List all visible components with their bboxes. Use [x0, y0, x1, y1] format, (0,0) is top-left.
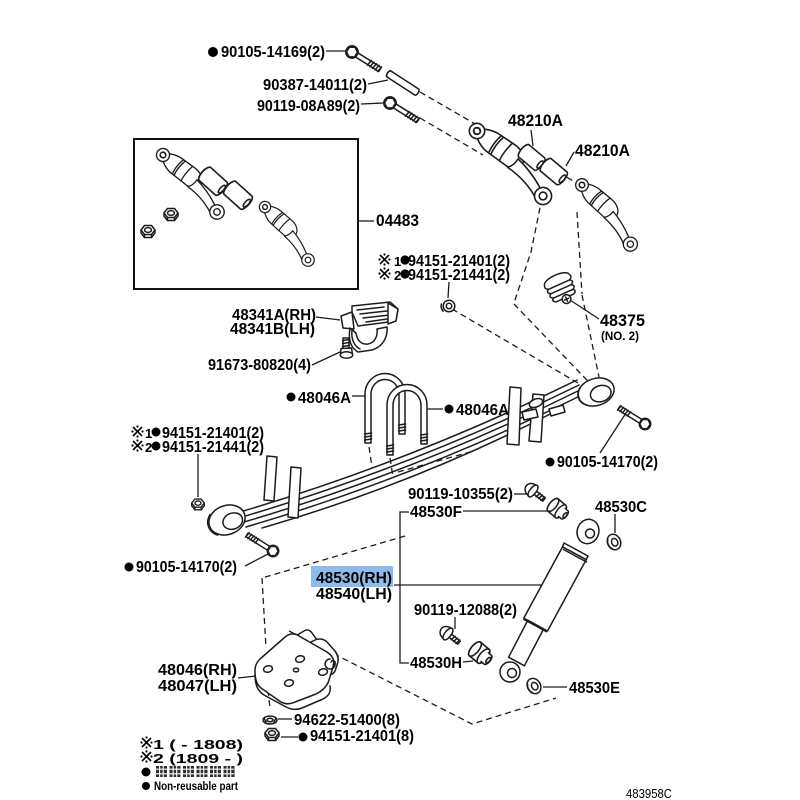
svg-text:48341B(LH): 48341B(LH)	[230, 321, 315, 338]
svg-text:2: 2	[145, 440, 152, 455]
svg-text:90387-14011(2): 90387-14011(2)	[263, 77, 367, 94]
svg-text:1: 1	[145, 426, 152, 441]
svg-text:2: 2	[394, 268, 401, 283]
svg-text:48375: 48375	[600, 311, 645, 330]
svg-text:Non-reusable part: Non-reusable part	[154, 779, 238, 793]
svg-text:(NO. 2): (NO. 2)	[601, 329, 639, 343]
svg-text:90105-14170(2): 90105-14170(2)	[557, 454, 658, 471]
svg-text:48210A: 48210A	[508, 111, 563, 130]
svg-text:48046A: 48046A	[456, 402, 509, 419]
svg-text:2 (1809 - ): 2 (1809 - )	[153, 751, 243, 766]
svg-text:90105-14169(2): 90105-14169(2)	[221, 44, 325, 61]
svg-text:91673-80820(4): 91673-80820(4)	[208, 357, 311, 374]
svg-text:1: 1	[394, 254, 401, 269]
svg-text:48046A: 48046A	[298, 390, 351, 407]
svg-text:48530C: 48530C	[595, 499, 647, 516]
svg-text:94622-51400(8): 94622-51400(8)	[294, 712, 400, 729]
svg-text:48210A: 48210A	[575, 141, 630, 160]
svg-text:48530E: 48530E	[569, 680, 620, 697]
svg-text:48530F: 48530F	[410, 504, 462, 521]
svg-text:90105-14170(2): 90105-14170(2)	[136, 559, 237, 576]
svg-text:48047(LH): 48047(LH)	[158, 678, 237, 695]
svg-text:94151-21441(2): 94151-21441(2)	[162, 439, 264, 456]
svg-text:90119-08A89(2): 90119-08A89(2)	[257, 98, 360, 115]
svg-text:04483: 04483	[376, 211, 419, 230]
svg-text:48530H: 48530H	[410, 655, 462, 672]
svg-text:1 ( - 1808): 1 ( - 1808)	[153, 737, 243, 752]
svg-text:483958C: 483958C	[626, 787, 672, 800]
svg-text:90119-10355(2): 90119-10355(2)	[408, 486, 513, 503]
svg-text:48530(RH): 48530(RH)	[316, 570, 392, 587]
svg-text:90119-12088(2): 90119-12088(2)	[414, 602, 517, 619]
svg-text:48046(RH): 48046(RH)	[158, 662, 237, 679]
svg-text:94151-21401(8): 94151-21401(8)	[310, 728, 414, 745]
svg-text:48540(LH): 48540(LH)	[316, 586, 392, 603]
svg-text:94151-21441(2): 94151-21441(2)	[408, 267, 510, 284]
